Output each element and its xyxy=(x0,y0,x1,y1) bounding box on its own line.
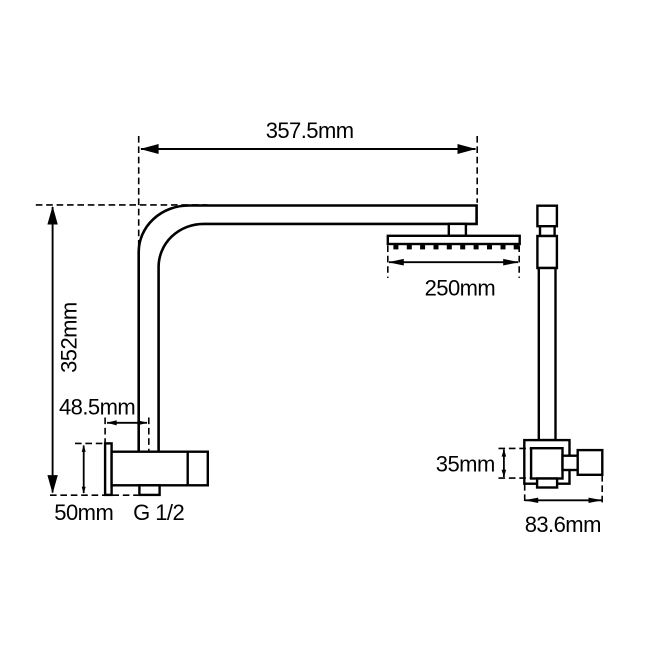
svg-text:48.5mm: 48.5mm xyxy=(59,395,135,420)
svg-text:83.6mm: 83.6mm xyxy=(525,512,601,537)
svg-text:50mm: 50mm xyxy=(54,500,113,525)
svg-text:250mm: 250mm xyxy=(425,276,496,301)
svg-text:G 1/2: G 1/2 xyxy=(133,500,184,525)
svg-text:352mm: 352mm xyxy=(57,302,82,373)
svg-text:357.5mm: 357.5mm xyxy=(266,118,354,143)
svg-text:35mm: 35mm xyxy=(436,452,495,477)
